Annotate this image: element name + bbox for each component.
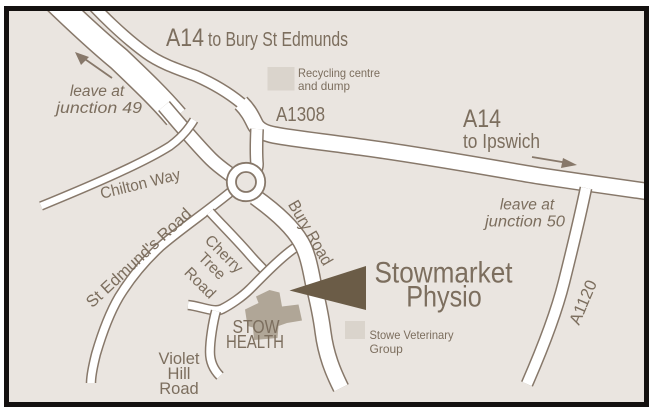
svg-text:to Bury St Edmunds: to Bury St Edmunds [208,29,348,51]
svg-text:Physio: Physio [406,281,482,314]
svg-text:Road: Road [159,380,198,398]
svg-text:Stowe Veterinary: Stowe Veterinary [370,328,454,342]
svg-text:leave at: leave at [500,197,555,214]
svg-text:A1308: A1308 [276,104,325,126]
svg-text:to Ipswich: to Ipswich [463,131,540,153]
svg-text:Group: Group [370,342,404,356]
svg-text:and dump: and dump [298,79,350,93]
svg-text:Recycling centre: Recycling centre [298,66,380,80]
svg-text:junction 49: junction 49 [54,100,143,117]
svg-text:junction 50: junction 50 [483,214,566,231]
svg-text:A14: A14 [463,105,501,133]
svg-text:leave at: leave at [70,83,125,100]
svg-text:HEALTH: HEALTH [226,331,284,352]
svg-text:A14: A14 [166,24,204,52]
